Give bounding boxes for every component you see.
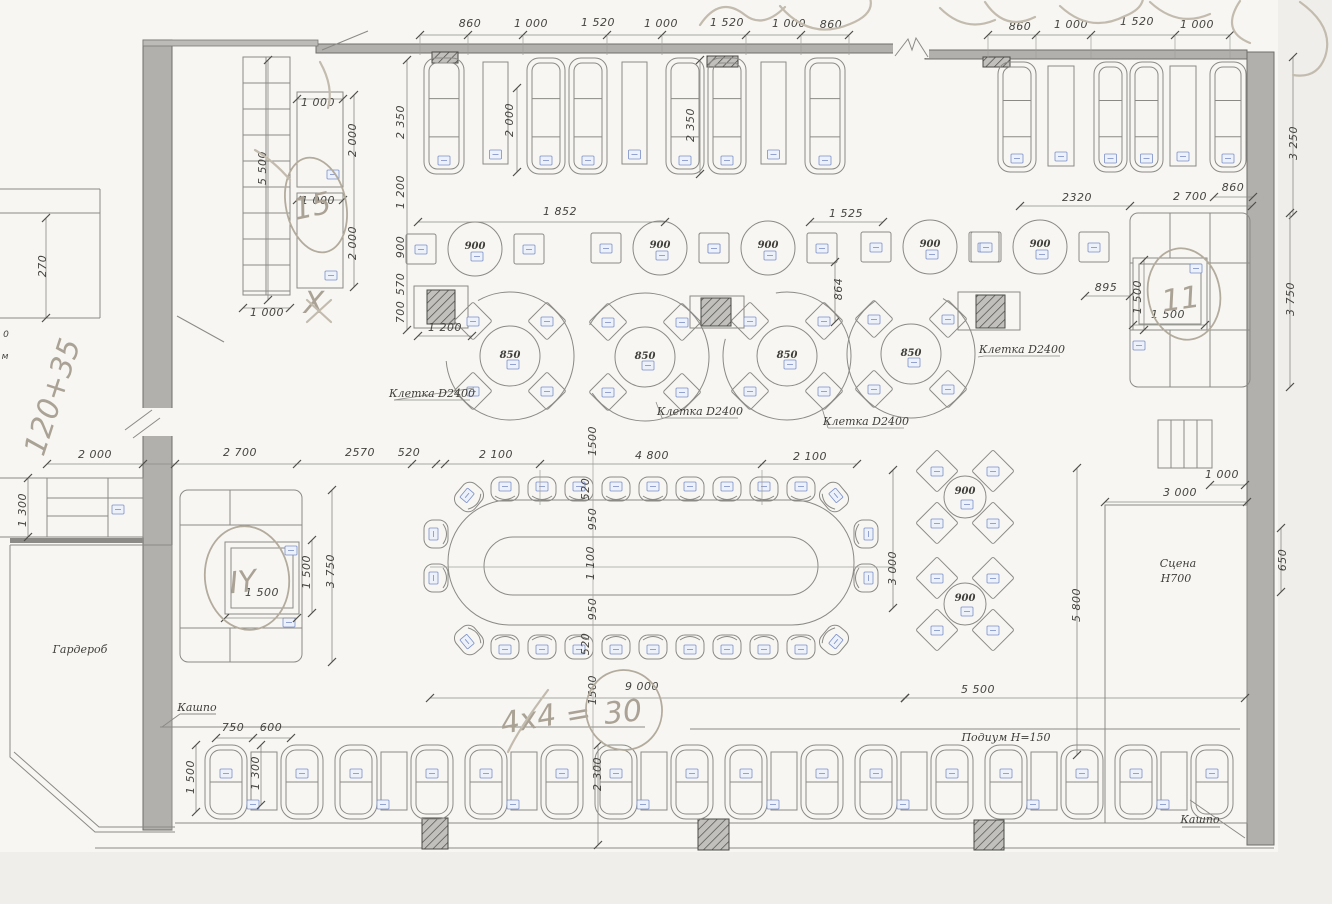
floor-plan-page: 8601 0001 5201 0001 5201 0008608601 0001… — [0, 0, 1332, 904]
dimension-label: 650 — [1276, 549, 1289, 572]
dimension-label: 895 — [1095, 281, 1118, 294]
dimension-label: 1 500 — [1131, 280, 1144, 314]
dimension-label: 5 800 — [1070, 588, 1083, 622]
dimension-label: 1 100 — [584, 546, 597, 580]
wall — [143, 40, 172, 413]
scan-edge-bottom — [0, 852, 1332, 904]
table-diameter-label: 850 — [901, 348, 922, 359]
table-diameter-label: 900 — [955, 486, 976, 497]
dimension-label: 1 500 — [184, 760, 197, 794]
dimension-label: 3 000 — [886, 551, 899, 585]
dimension-label: 2 300 — [591, 757, 604, 791]
round-table-900 — [944, 476, 986, 518]
room-label: Кашпо — [1179, 813, 1220, 826]
wall — [925, 50, 1247, 59]
round-table-900 — [944, 583, 986, 625]
table-diameter-label: 900 — [465, 241, 486, 252]
dimension-label: 570 — [394, 273, 407, 296]
dimension-label: 3 750 — [324, 554, 337, 588]
dimension-label: 1 520 — [710, 16, 744, 29]
table-diameter-label: 900 — [758, 240, 779, 251]
dimension-label: 2 700 — [223, 446, 257, 459]
handwritten-note: 11 — [1159, 280, 1202, 320]
dimension-label: 5 500 — [961, 683, 995, 696]
dimension-label: 1 200 — [394, 175, 407, 209]
plan-shape — [701, 298, 731, 326]
plan-shape — [974, 820, 1004, 850]
dimension-label: 520 — [398, 446, 421, 459]
dimension-label: 950 — [586, 508, 599, 531]
dimension-label: 3 750 — [1284, 282, 1297, 316]
dimension-label: 1500 — [586, 426, 599, 456]
dimension-label: 3 250 — [1287, 126, 1300, 160]
dimension-label: 700 — [394, 301, 407, 324]
dimension-label: 1 300 — [249, 756, 262, 790]
dimension-label: 1 525 — [829, 207, 863, 220]
dimension-label: 1 500 — [300, 555, 313, 589]
dimension-label: 0 — [3, 330, 9, 340]
table-diameter-label: 850 — [777, 350, 798, 361]
room-label: Подиум Н=150 — [960, 731, 1050, 744]
dimension-label: 2 350 — [394, 105, 407, 139]
table-diameter-label: 850 — [635, 351, 656, 362]
table-diameter-label: 900 — [650, 240, 671, 251]
room-label: Гардероб — [52, 643, 108, 656]
dimension-label: 2 000 — [346, 226, 359, 260]
floor-plan-svg: 8601 0001 5201 0001 5201 0008608601 0001… — [0, 0, 1332, 904]
handwritten-note: 30 — [602, 693, 644, 732]
dimension-label: 1 000 — [514, 17, 548, 30]
table-diameter-label: 900 — [920, 239, 941, 250]
wall — [143, 40, 318, 46]
plan-shape — [976, 295, 1005, 328]
plan-shape — [698, 819, 729, 850]
plan-shape — [141, 408, 174, 436]
dimension-label: 520 — [579, 633, 592, 656]
wall — [1247, 52, 1274, 845]
cage-label: Клетка D2400 — [978, 343, 1065, 356]
wall — [143, 432, 172, 830]
dimension-label: 4 800 — [635, 449, 669, 462]
cage-label: Клетка D2400 — [656, 405, 743, 418]
table-diameter-label: 900 — [955, 593, 976, 604]
dimension-label: 2570 — [345, 446, 375, 459]
dimension-label: 2 350 — [684, 108, 697, 142]
wall — [10, 538, 143, 543]
cage-label: Клетка D2400 — [388, 387, 475, 400]
dimension-label: 520 — [579, 478, 592, 501]
dimension-label: 900 — [394, 236, 407, 259]
dimension-label: 1 852 — [543, 205, 577, 218]
plan-shape — [427, 290, 455, 324]
dimension-label: 864 — [832, 278, 845, 301]
dimension-label: 600 — [260, 721, 283, 734]
dimension-label: 1 000 — [250, 306, 284, 319]
cage-label: Клетка D2400 — [822, 415, 909, 428]
dimension-label: 1 000 — [644, 17, 678, 30]
dimension-label: 1 200 — [428, 321, 462, 334]
dimension-label: 860 — [1222, 181, 1245, 194]
dimension-label: 2 100 — [479, 448, 513, 461]
plan-shape — [422, 818, 448, 849]
dimension-label: 2 000 — [503, 103, 516, 137]
dimension-label: 950 — [586, 598, 599, 621]
dimension-label: 2 000 — [78, 448, 112, 461]
room-label: Кашпо — [176, 701, 217, 714]
dimension-label: 1 000 — [1180, 18, 1214, 31]
dimension-label: 750 — [222, 721, 245, 734]
dimension-label: 270 — [36, 255, 49, 278]
room-label: Н700 — [1160, 572, 1192, 585]
room-label: Сцена — [1160, 557, 1196, 570]
dimension-label: 1 520 — [581, 16, 615, 29]
dimension-label: м — [2, 352, 9, 362]
plan-shape — [983, 57, 1010, 67]
dimension-label: 1 300 — [16, 493, 29, 527]
dimension-label: 1 000 — [1205, 468, 1239, 481]
dimension-label: 3 000 — [1163, 486, 1197, 499]
table-diameter-label: 900 — [1030, 239, 1051, 250]
dimension-label: 860 — [459, 17, 482, 30]
table-diameter-label: 850 — [500, 350, 521, 361]
dimension-label: 2 000 — [346, 123, 359, 157]
dimension-label: 2320 — [1062, 191, 1092, 204]
dimension-label: 2 100 — [793, 450, 827, 463]
dimension-label: 2 700 — [1173, 190, 1207, 203]
